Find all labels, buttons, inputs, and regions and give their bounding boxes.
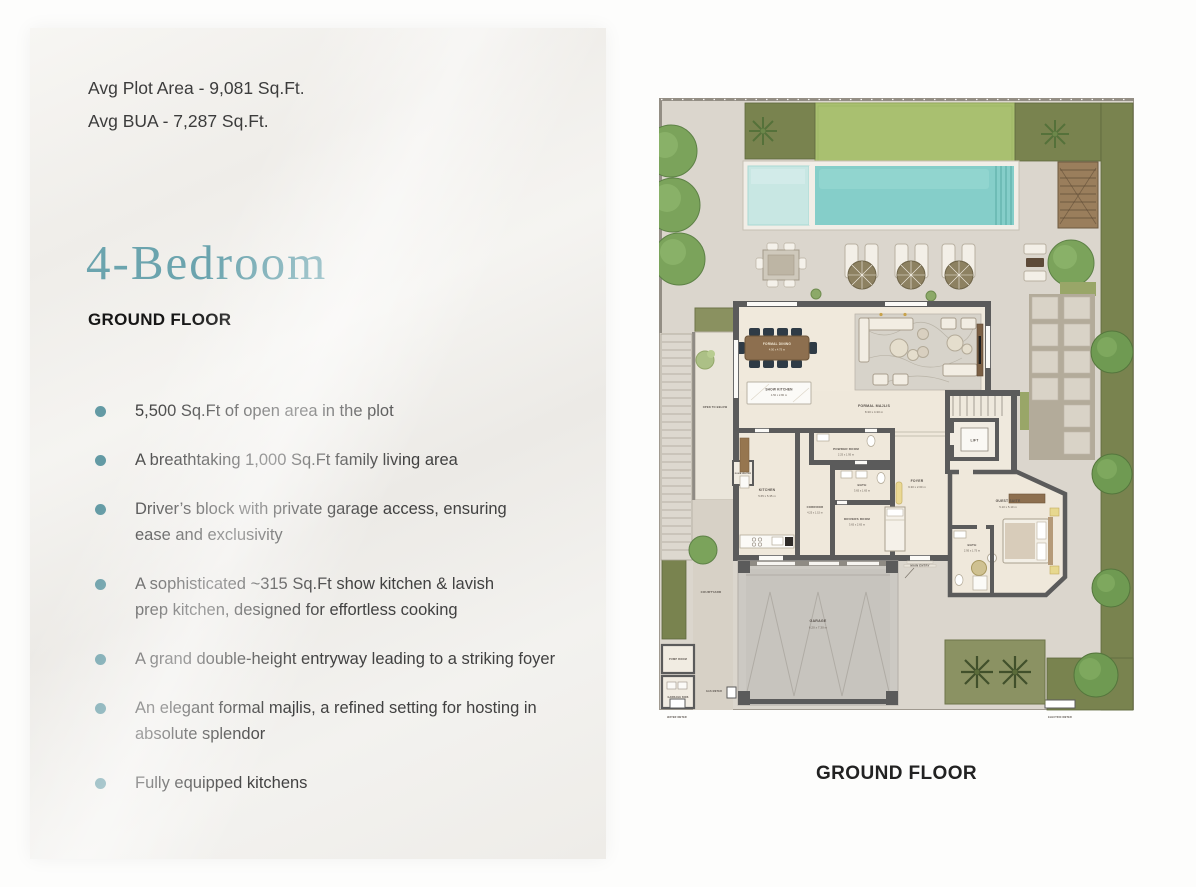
outdoor-dining-set (756, 243, 806, 287)
bullet-text: A sophisticated ~315 Sq.Ft show kitchen … (135, 571, 527, 623)
pool (743, 161, 1019, 230)
page-subtitle: GROUND FLOOR (88, 310, 231, 330)
tree (1091, 331, 1133, 373)
bullet-text: A breathtaking 1,000 Sq.Ft family living… (135, 447, 458, 473)
feature-list: 5,500 Sq.Ft of open area in the plot A b… (95, 398, 571, 819)
tree (1048, 240, 1094, 286)
sink (954, 531, 966, 538)
wall (990, 525, 994, 595)
label-drivers-room: DRIVERS ROOM (844, 517, 870, 521)
bullet-text: Driver’s block with private garage acces… (135, 496, 537, 548)
label-powder-room: POWDER ROOM (833, 447, 859, 451)
bullet-dot-icon (95, 579, 106, 590)
label-formal-dining: FORMAL DINING (763, 342, 792, 346)
toilet (955, 575, 963, 586)
bullet-dot-icon (95, 778, 106, 789)
label-drivers-room-dim: 3.65 x 2.65 m (849, 523, 866, 527)
label-main-entry: MAIN ENTRY (910, 564, 929, 568)
label-foyer-dim: 6.30 x 2.60 m (908, 485, 926, 489)
label-gas-meter: GAS METER (706, 690, 722, 693)
bullet-dot-icon (95, 504, 106, 515)
electric-meter-box (1045, 700, 1075, 708)
avg-plot-area: Avg Plot Area - 9,081 Sq.Ft. (88, 72, 305, 105)
hedge (1101, 103, 1133, 710)
umbrella-icon (897, 261, 925, 289)
garage (738, 561, 898, 705)
bed (885, 507, 905, 551)
info-panel: Avg Plot Area - 9,081 Sq.Ft. Avg BUA - 7… (30, 28, 606, 859)
label-garage: GARAGE (810, 619, 827, 623)
tree (689, 536, 717, 564)
label-guest-bath-dim: 2.95 x 1.75 m (964, 549, 981, 553)
label-pump-room: PUMP ROOM (669, 657, 687, 661)
wall (692, 332, 695, 500)
page-title: 4-Bedroom (86, 234, 327, 291)
label-guest-bath: BATH (968, 543, 977, 547)
bush (811, 289, 821, 299)
guest-suite (950, 472, 1065, 595)
list-item: 5,500 Sq.Ft of open area in the plot (95, 398, 571, 424)
list-item: A breathtaking 1,000 Sq.Ft family living… (95, 447, 571, 473)
bullet-dot-icon (95, 455, 106, 466)
wall (950, 525, 994, 529)
lawn-patch (1060, 282, 1096, 296)
show-kitchen-island (747, 382, 811, 404)
label-guest-suite: GUEST SUITE (996, 499, 1021, 503)
water-meter-box (670, 699, 685, 708)
floorplan-drawing: FORMAL DINING 4.50 x 4.75 m SHOW KITCHEN… (659, 98, 1134, 728)
label-open-to-below: OPEN TO BELOW (703, 405, 728, 409)
label-powder-room-dim: 2.25 x 1.95 m (838, 453, 855, 457)
north-fence (659, 98, 1134, 101)
palm-tree (1041, 120, 1069, 148)
floorplan-caption: GROUND FLOOR (659, 763, 1134, 785)
tree (659, 233, 705, 285)
bullet-text: 5,500 Sq.Ft of open area in the plot (135, 398, 394, 424)
list-item: A sophisticated ~315 Sq.Ft show kitchen … (95, 571, 571, 623)
label-formal-majlis: FORMAL MAJLIS (858, 404, 890, 408)
palm-tree (749, 117, 777, 145)
door-gap (977, 525, 986, 529)
list-item: Fully equipped kitchens (95, 770, 571, 796)
label-show-kitchen-dim: 4.50 x 2.80 m (771, 393, 788, 397)
tree (1074, 653, 1118, 697)
bush (926, 291, 936, 301)
label-corridor-dim: 4.25 x 1.15 m (807, 511, 823, 515)
label-garbage-bins: GARBAGE BINS (668, 696, 689, 699)
list-item: A grand double-height entryway leading t… (95, 646, 571, 672)
label-kitchen: KITCHEN (759, 488, 776, 492)
label-formal-majlis-dim: 8.30 x 4.30 m (865, 410, 884, 414)
hedge (662, 553, 686, 639)
umbrella-icon (945, 261, 973, 289)
label-show-kitchen: SHOW KITCHEN (765, 388, 793, 392)
gas-meter-box (727, 687, 736, 698)
label-formal-dining-dim: 4.50 x 4.75 m (769, 348, 786, 352)
stats-block: Avg Plot Area - 9,081 Sq.Ft. Avg BUA - 7… (88, 72, 305, 138)
outdoor-stairs (661, 334, 692, 560)
shower (973, 576, 987, 590)
bullet-dot-icon (95, 406, 106, 417)
tree (1092, 569, 1130, 607)
tree (1092, 454, 1132, 494)
label-corridor: CORRIDOR (807, 505, 824, 509)
palm-planter (945, 640, 1045, 704)
label-bath: BATH (858, 483, 867, 487)
label-water-meter: WATER METER (667, 716, 687, 719)
courtyard-paving (693, 500, 733, 710)
bush (707, 350, 715, 358)
label-dumb-waiter: DUMB WAITER (735, 472, 752, 475)
label-bath-dim: 3.65 x 1.65 m (854, 489, 871, 493)
pergola (1058, 162, 1098, 228)
bullet-dot-icon (95, 703, 106, 714)
label-courtyard: COURTYARD (701, 590, 722, 594)
side-tables (1024, 244, 1046, 281)
armchair (972, 561, 987, 576)
bullet-text: An elegant formal majlis, a refined sett… (135, 695, 571, 747)
bullet-text: Fully equipped kitchens (135, 770, 307, 796)
label-guest-suite-dim: 5.10 x 5.10 m (999, 505, 1017, 509)
umbrella-icon (848, 261, 876, 289)
stepping-stones (1029, 294, 1095, 460)
label-kitchen-dim: 5.65 x 5.35 m (758, 494, 776, 498)
label-garage-dim: 6.20 x 7.30 m (809, 626, 828, 630)
label-electric-meter: ELECTRIC METER (1048, 716, 1072, 719)
tv-console (977, 324, 983, 376)
list-item: Driver’s block with private garage acces… (95, 496, 571, 548)
planter (695, 308, 735, 332)
avg-bua: Avg BUA - 7,287 Sq.Ft. (88, 105, 305, 138)
list-item: An elegant formal majlis, a refined sett… (95, 695, 571, 747)
label-foyer: FOYER (911, 479, 924, 483)
bullet-text: A grand double-height entryway leading t… (135, 646, 555, 672)
bullet-dot-icon (95, 654, 106, 665)
label-lift: LIFT (971, 439, 980, 443)
